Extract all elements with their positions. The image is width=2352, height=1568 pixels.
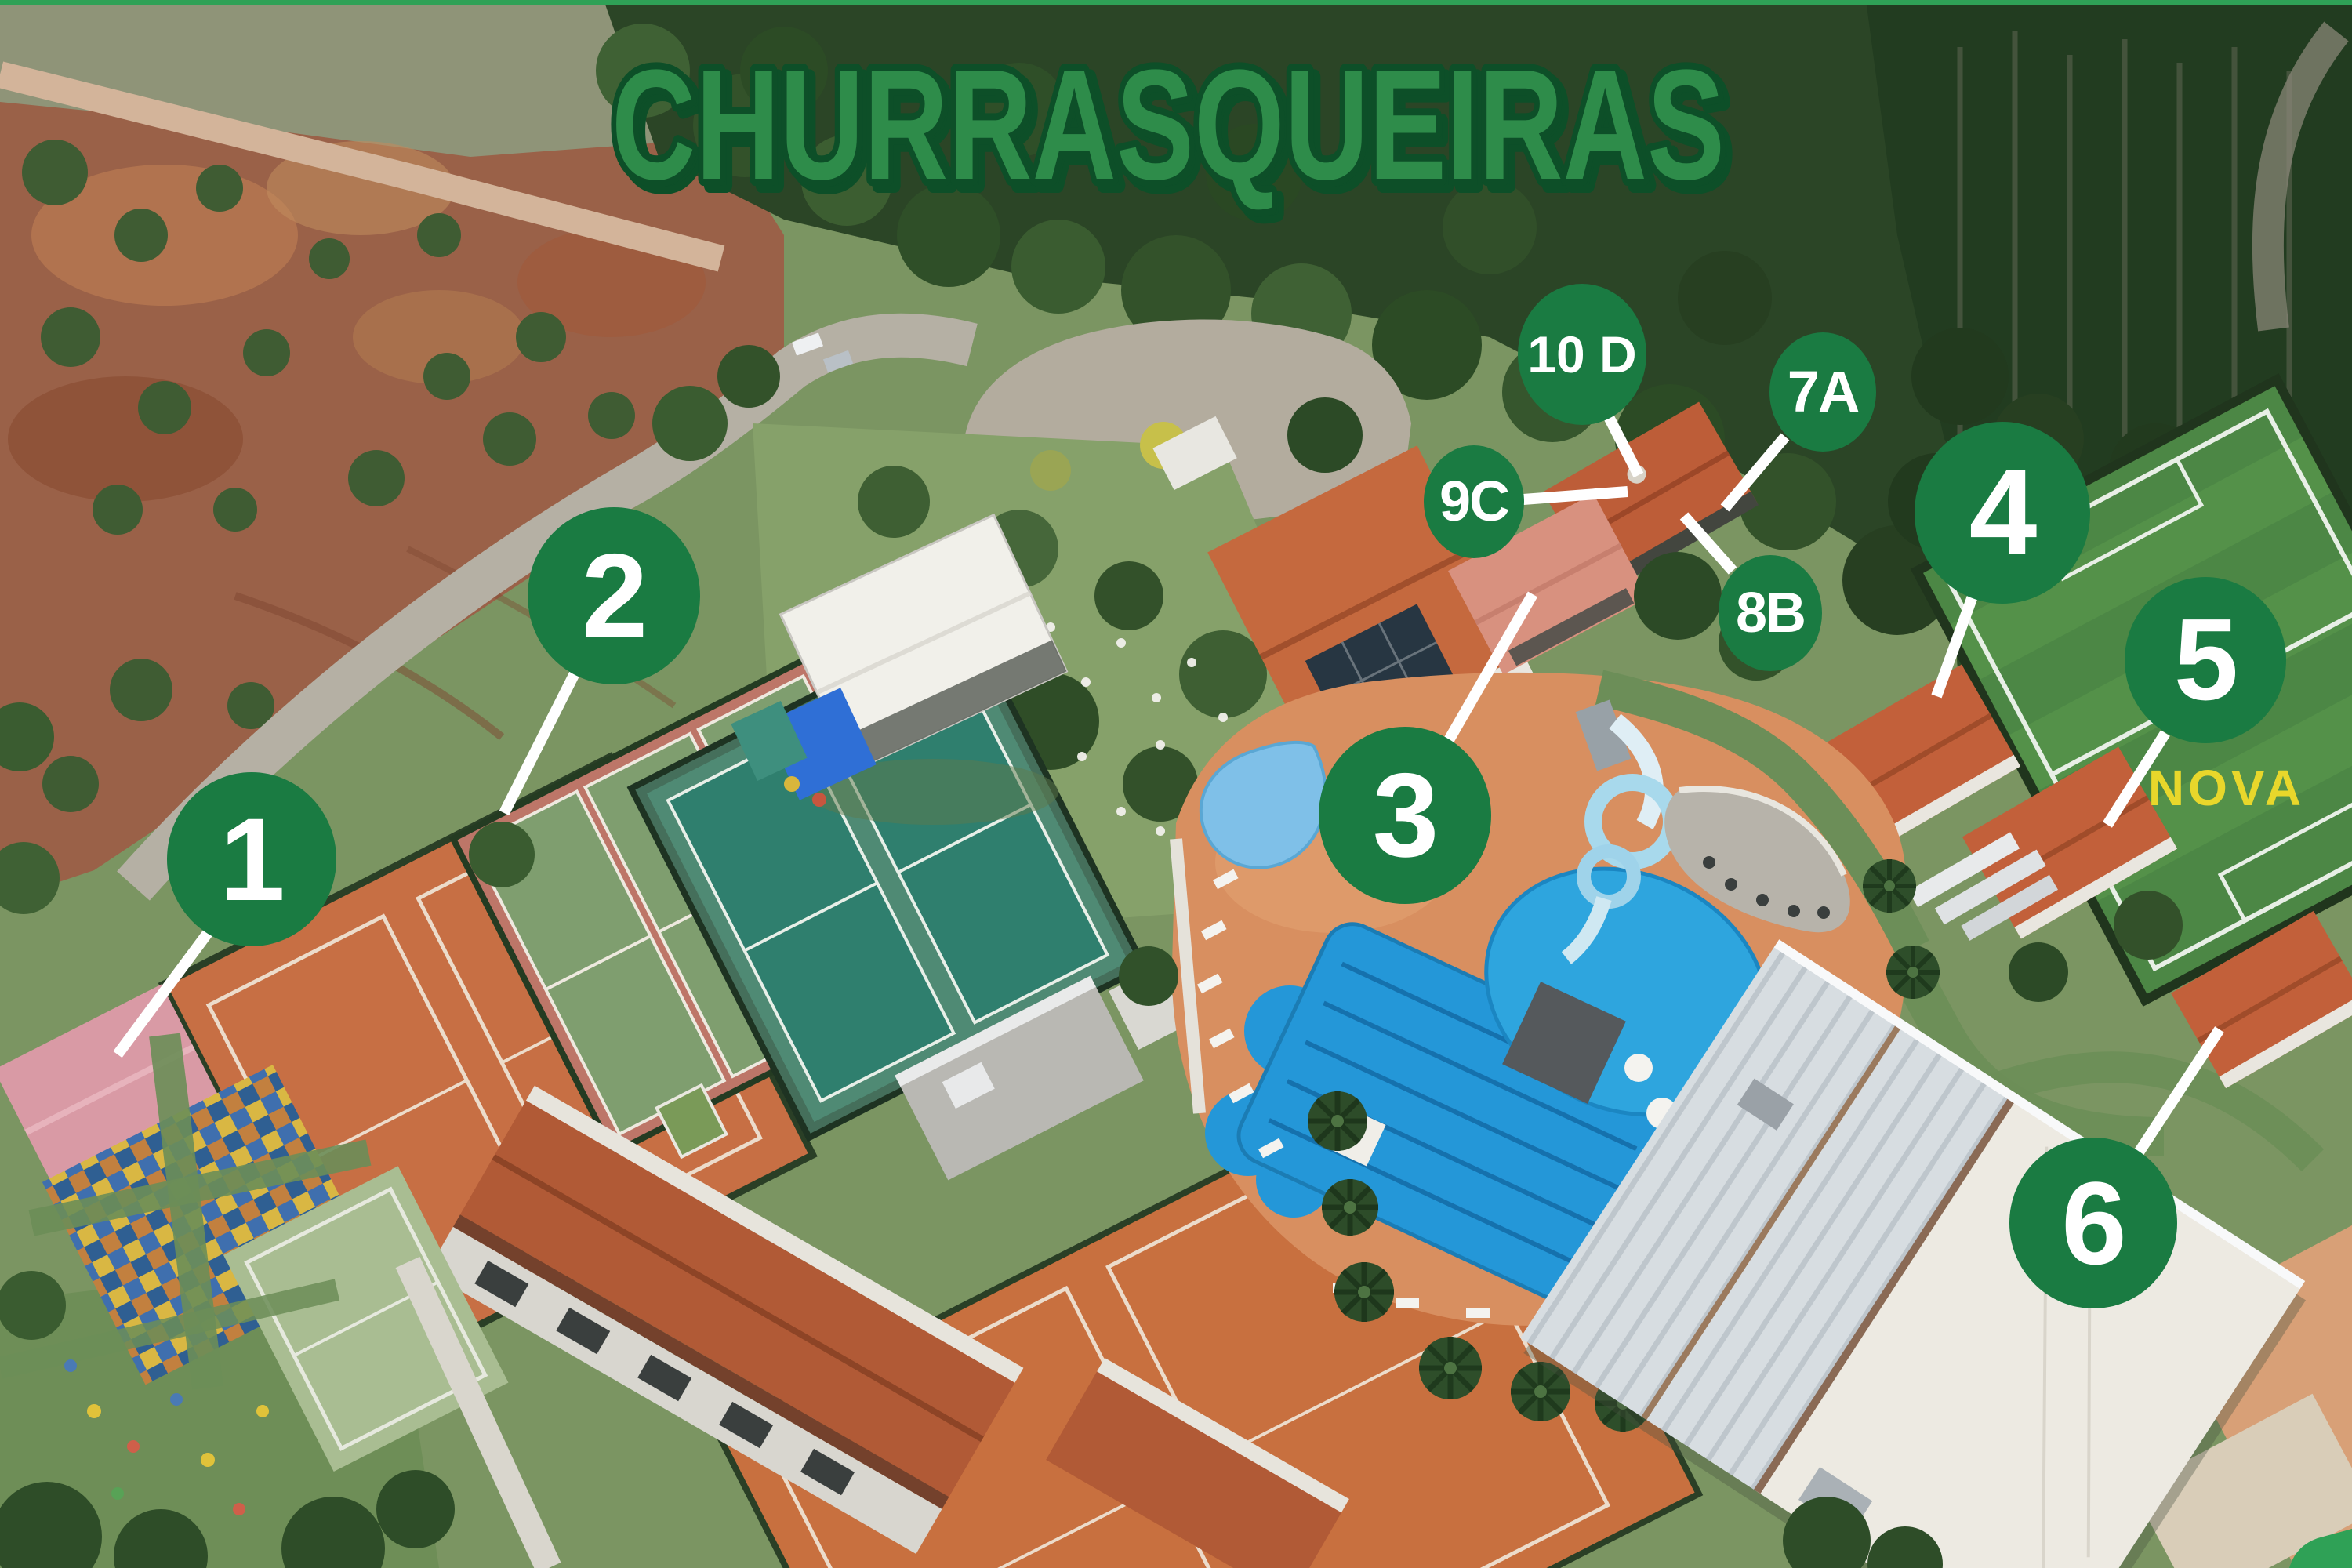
connector-lines	[118, 414, 2220, 1152]
connector-line-9c	[1523, 492, 1628, 499]
connector-line-3	[1449, 594, 1533, 740]
marker-9c[interactable]: 9C	[1424, 445, 1524, 558]
connector-line-6	[2139, 1029, 2220, 1152]
connector-line-4	[1936, 594, 1973, 696]
marker-1[interactable]: 1	[167, 772, 336, 946]
marker-4[interactable]: 4	[1915, 422, 2090, 604]
marker-8b[interactable]: 8B	[1719, 555, 1822, 671]
marker-7a[interactable]: 7A	[1769, 332, 1876, 452]
marker-3[interactable]: 3	[1319, 727, 1491, 904]
annotation-overlay: CHURRASQUEIRAS CHURRASQUEIRAS	[0, 0, 2352, 1568]
connector-line-8b	[1684, 516, 1733, 571]
marker-10d[interactable]: 10 D	[1518, 284, 1646, 425]
marker-5[interactable]: 5	[2125, 577, 2286, 743]
marker-2[interactable]: 2	[528, 507, 700, 684]
connector-line-2	[504, 673, 575, 813]
connector-line-1	[118, 933, 208, 1054]
page-title: CHURRASQUEIRAS	[612, 38, 1725, 212]
marker-6[interactable]: 6	[2009, 1138, 2177, 1308]
connector-line-10d	[1607, 414, 1639, 475]
connector-line-7a	[1725, 437, 1785, 508]
nova-label: NOVA	[2148, 759, 2305, 817]
